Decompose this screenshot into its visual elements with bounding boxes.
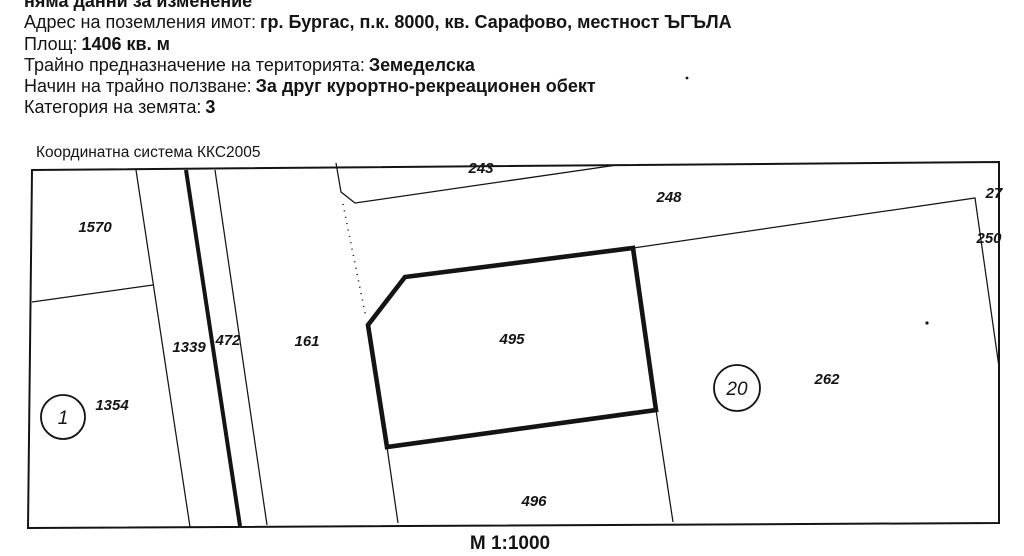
dotted-boundary	[343, 204, 366, 318]
field-territory-purpose-value: Земеделска	[369, 55, 475, 75]
field-area: Площ:1406 кв. м	[24, 34, 732, 55]
field-territory-purpose-label: Трайно предназначение на територията:	[24, 55, 365, 75]
field-land-category-value: 3	[205, 97, 215, 117]
parcel-label-250: 250	[975, 230, 1002, 247]
field-address: Адрес на поземления имот:гр. Бургас, п.к…	[24, 12, 732, 33]
field-area-label: Площ:	[24, 34, 77, 54]
scan-speck	[925, 321, 928, 324]
boundary-1570-1354	[32, 285, 153, 302]
marker-number-1: 1	[58, 408, 69, 429]
parcel-label-1570: 1570	[78, 219, 112, 236]
field-land-use-label: Начин на трайно ползване:	[24, 76, 252, 96]
parcel-label-472: 472	[214, 332, 241, 349]
parcel-label-27: 27	[985, 185, 1003, 202]
parcel-label-248: 248	[655, 189, 682, 206]
coordinate-system-label: Координатна система ККС2005	[36, 144, 261, 161]
field-land-use-value: За друг курортно-рекреационен обект	[256, 76, 596, 96]
parcel-label-243: 243	[467, 160, 494, 177]
parcel-label-496: 496	[520, 493, 547, 510]
boundary-248-262	[633, 198, 999, 367]
field-territory-purpose: Трайно предназначение на територията:Зем…	[24, 55, 732, 76]
parcel-label-262: 262	[813, 371, 840, 388]
parcel-label-1354: 1354	[95, 397, 129, 414]
field-address-label: Адрес на поземления имот:	[24, 12, 256, 32]
boundary-notch	[336, 163, 355, 203]
parcel-label-495: 495	[498, 331, 525, 348]
field-land-category-label: Категория на земята:	[24, 97, 201, 117]
parcel-label-161: 161	[294, 333, 319, 350]
scale-label: М 1:1000	[470, 533, 550, 554]
field-land-use: Начин на трайно ползване:За друг курортн…	[24, 76, 732, 97]
boundary-496-262	[656, 410, 673, 522]
boundary-496-left	[387, 447, 398, 523]
document-header: няма данни за изменение Адрес на поземле…	[24, 0, 732, 119]
parcel-label-1339: 1339	[172, 339, 206, 356]
field-area-value: 1406 кв. м	[81, 34, 169, 54]
note-line: няма данни за изменение	[24, 0, 732, 12]
field-land-category: Категория на земята:3	[24, 97, 732, 118]
marker-number-20: 20	[725, 379, 748, 400]
field-address-value: гр. Бургас, п.к. 8000, кв. Сарафово, мес…	[260, 12, 732, 32]
